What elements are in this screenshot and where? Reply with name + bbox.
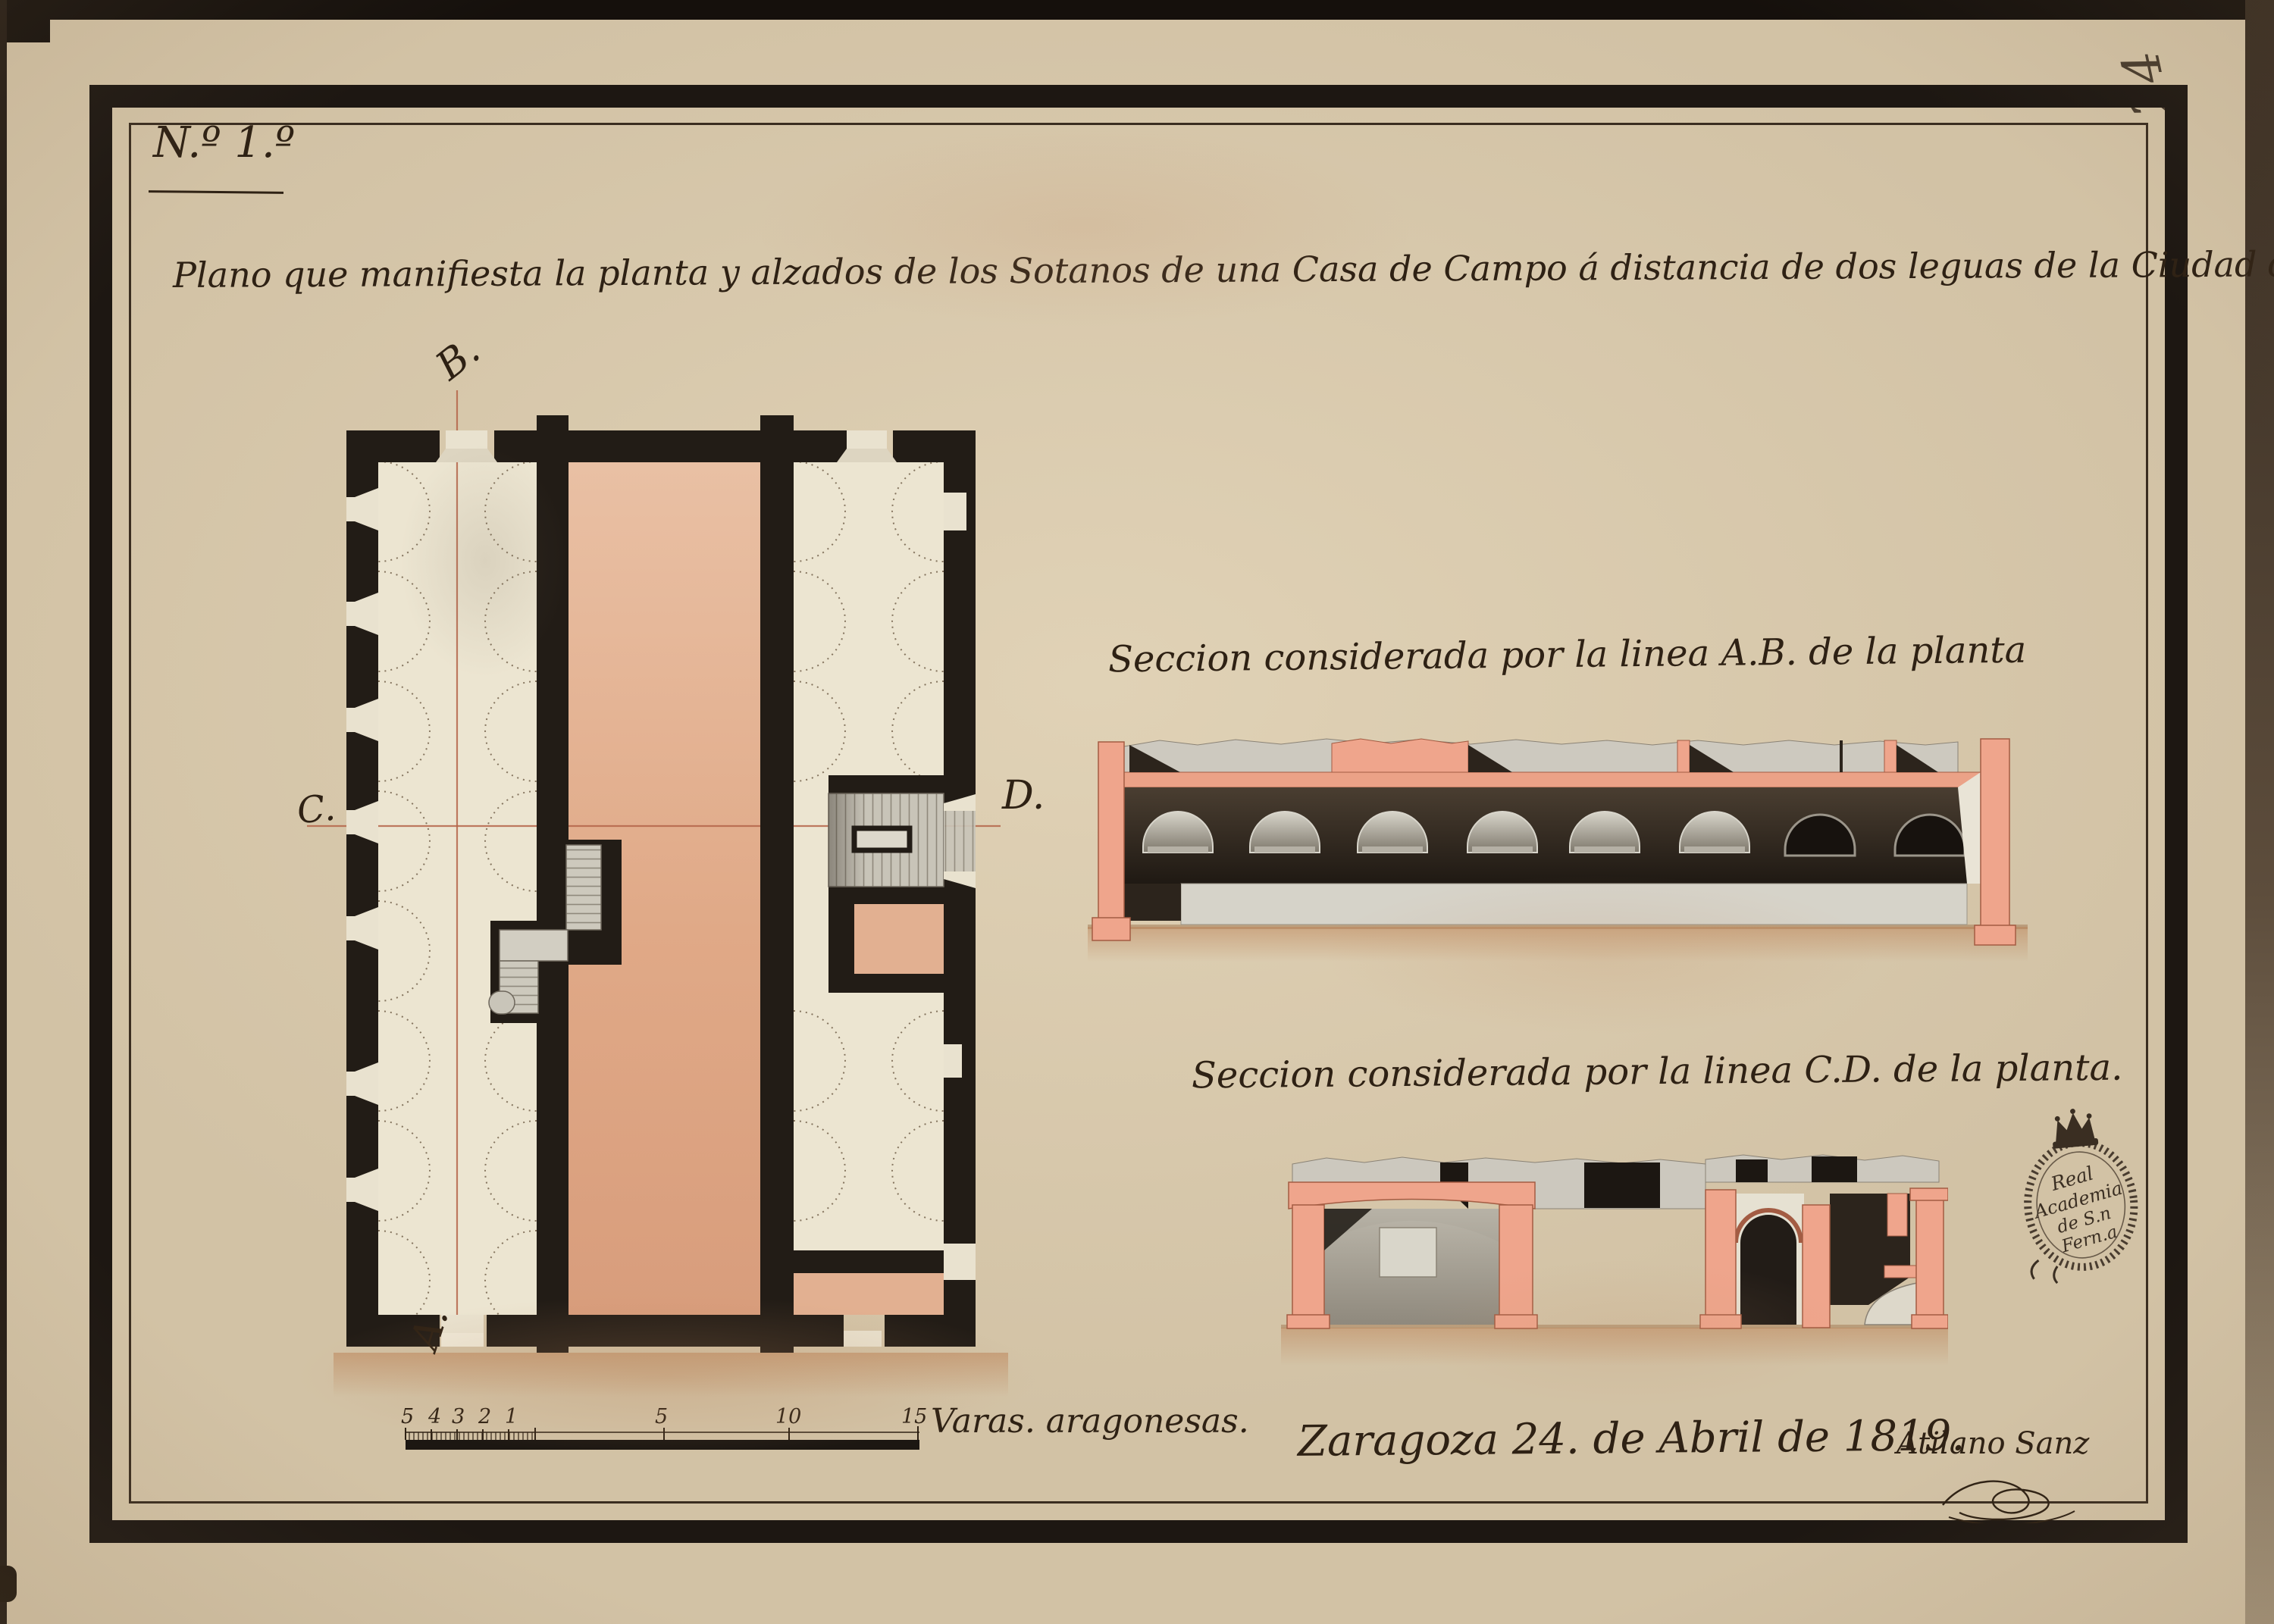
scale-ticks: [406, 1426, 918, 1441]
scan-edge-bottom-left: [0, 1566, 17, 1602]
ab-parapet-block: [1332, 739, 1468, 772]
svg-text:15: 15: [901, 1405, 927, 1428]
plan-bottom-right-room-floor: [794, 1273, 944, 1315]
plan-marker-d: D.: [1002, 773, 1045, 818]
cd-ground-wash: [1281, 1328, 1948, 1366]
sheet-number: N.º 1.º: [153, 118, 295, 167]
document-scan: 24 N.º 1.º Plano que manifiesta la plant…: [0, 0, 2274, 1624]
plan-right-stair: [828, 793, 976, 888]
plan-group: [307, 390, 1008, 1397]
ab-plinth-strip: [1181, 884, 1967, 925]
svg-text:5: 5: [655, 1405, 668, 1428]
ab-left-dark-step: [1124, 884, 1181, 921]
scale-label: Varas. aragonesas.: [931, 1402, 1249, 1441]
ab-floor-band: [1124, 772, 1981, 787]
svg-text:10: 10: [775, 1405, 801, 1428]
ab-ground-wash: [1088, 927, 2028, 962]
ab-right-pier: [1981, 739, 2009, 928]
scan-edge-top-left: [0, 0, 50, 42]
svg-text:5: 5: [401, 1405, 414, 1428]
academy-stamp: Real Academia de S.n Fern.a: [2003, 1099, 2158, 1288]
cd-right-chamber: [1700, 1188, 1948, 1328]
floor-plan-drawing: [280, 303, 1008, 1402]
ab-left-pier: [1098, 742, 1124, 921]
section-cd-label: Seccion considerada por la linea C.D. de…: [1192, 1047, 2123, 1097]
ab-left-pier-base: [1092, 918, 1130, 940]
ab-upper-wall-strip: [1124, 739, 1958, 772]
ab-right-pier-base: [1975, 925, 2016, 945]
svg-text:3: 3: [452, 1405, 465, 1428]
ab-partition-1: [1677, 740, 1690, 772]
section-cd-drawing: [1281, 1129, 1948, 1379]
svg-text:4: 4: [428, 1405, 441, 1428]
scale-subdivisions: [406, 1432, 535, 1440]
signature-flourish: [1929, 1469, 2088, 1523]
cd-left-chamber: [1287, 1182, 1537, 1328]
ab-thin-partition: [1840, 740, 1843, 772]
scan-edge-left: [0, 0, 7, 1624]
scan-edge-top: [0, 0, 2274, 20]
scale-numbers: 5 4 3 2 1 5 10 15: [401, 1405, 927, 1428]
ab-partition-2: [1884, 740, 1897, 772]
svg-text:1: 1: [505, 1405, 518, 1428]
stamp-crown: [2050, 1106, 2098, 1148]
svg-text:2: 2: [478, 1405, 491, 1428]
scale-main-bar: [406, 1440, 919, 1450]
plan-ground-wash: [334, 1353, 1008, 1397]
plan-stair-roomlet-floor: [854, 904, 944, 974]
date-line: Zaragoza 24. de Abril de 1819.: [1298, 1411, 1965, 1466]
plan-marker-c: C.: [295, 787, 337, 833]
signature: Atilano Sanz: [1897, 1426, 2089, 1461]
section-ab-drawing: [1088, 724, 2028, 966]
